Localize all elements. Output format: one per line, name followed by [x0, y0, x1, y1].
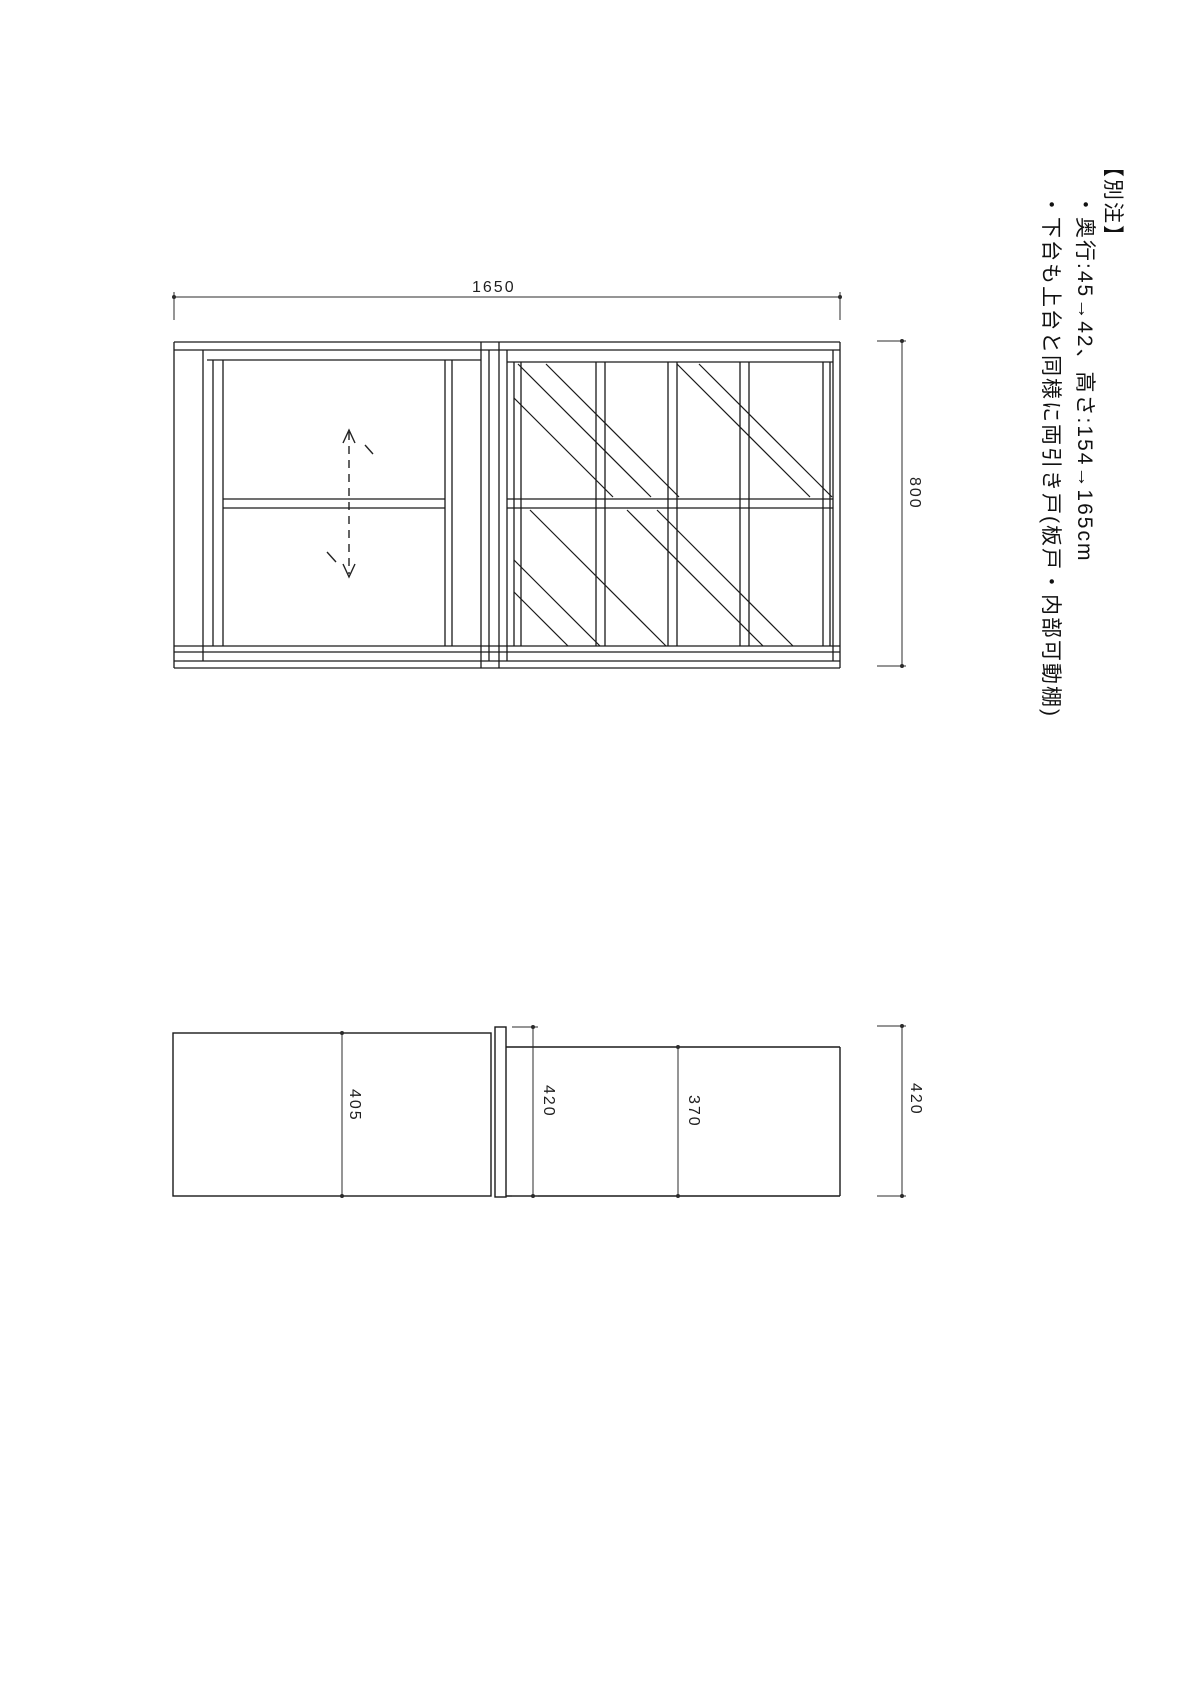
- drawing-page: 1650 800 405 420 370 420 【別注】 ・奥行:45→42、…: [0, 0, 1200, 1697]
- plan-lower-overall-depth-dimension-label: 420: [906, 1083, 924, 1116]
- elevation-height-dimension-label: 800: [905, 477, 923, 510]
- note-line-depth-height: ・奥行:45→42、高さ:154→165cm: [1071, 194, 1101, 562]
- elevation-width-dimension-label: 1650: [472, 279, 516, 297]
- plan-side-panel: [495, 1027, 506, 1197]
- left-board-door: [213, 360, 452, 646]
- elevation-view: [172, 292, 906, 668]
- plan-dimensions: [340, 1024, 906, 1198]
- plan-lower-inner-depth-dimension-label: 370: [684, 1095, 702, 1128]
- right-glass-doors-mullions: [514, 362, 830, 646]
- note-line-lower-cabinet: ・下台も上台と同様に両引き戸(板戸・内部可動棚): [1037, 194, 1067, 718]
- middle-shelf-rail: [223, 499, 833, 508]
- plan-upper-overall-depth-dimension-label: 420: [539, 1085, 557, 1118]
- plan-upper-depth-dimension-label: 405: [345, 1089, 363, 1122]
- glass-hatch-lines: [514, 364, 832, 646]
- note-title: 【別注】: [1099, 156, 1129, 248]
- plan-lower-cabinet: [506, 1047, 840, 1196]
- plan-upper-cabinet: [173, 1033, 491, 1196]
- door-slide-indicator: [327, 430, 373, 577]
- technical-drawing-canvas: [0, 0, 1200, 1697]
- elevation-dimensions: [172, 292, 906, 668]
